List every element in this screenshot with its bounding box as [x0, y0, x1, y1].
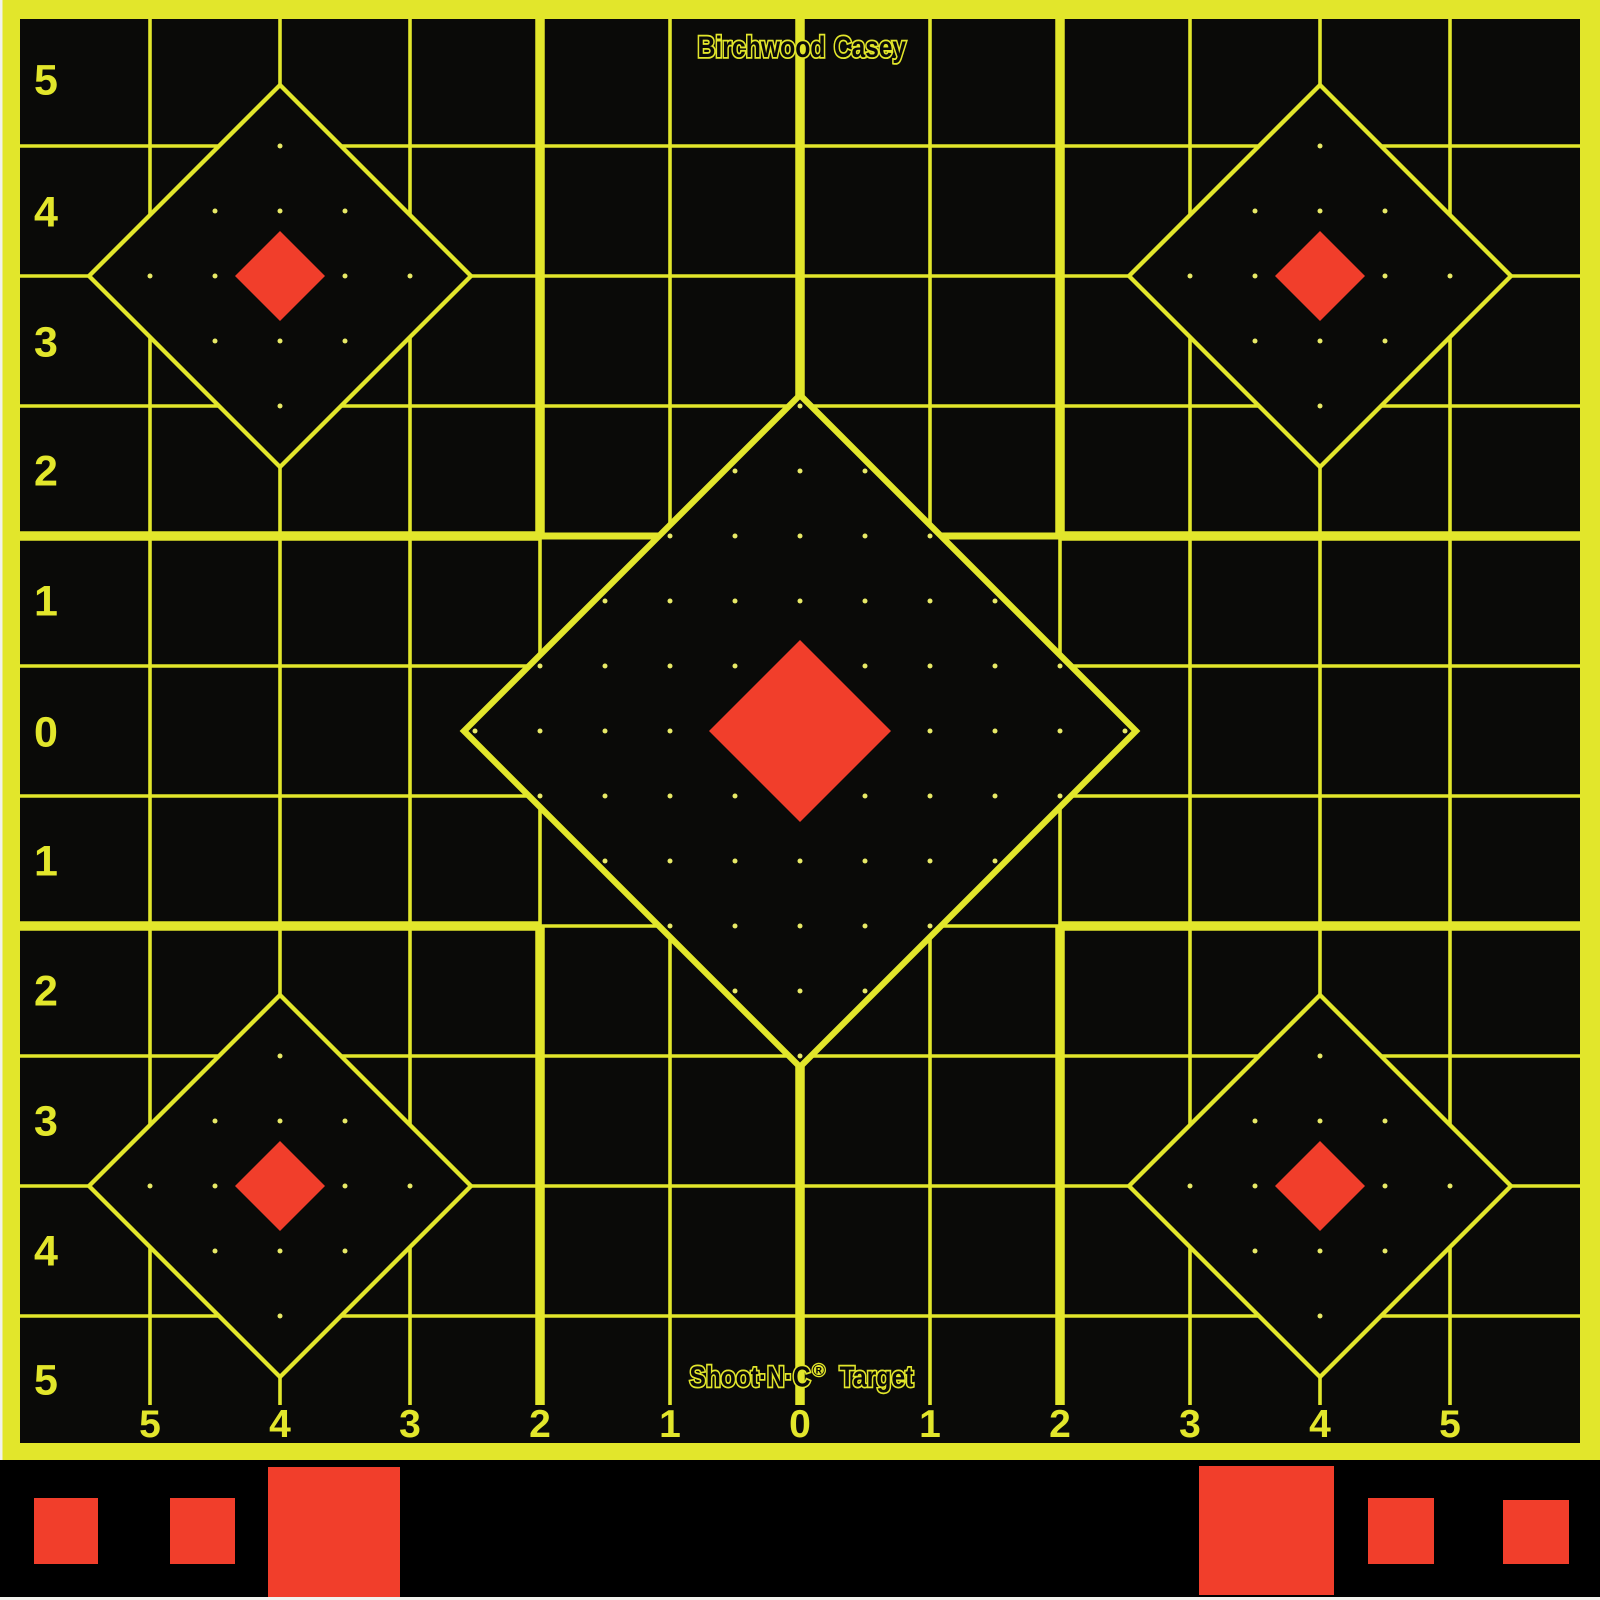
svg-text:Casey: Casey — [834, 31, 906, 64]
svg-text:1: 1 — [659, 1403, 681, 1446]
svg-text:Birchwood: Birchwood — [698, 31, 826, 64]
svg-text:0: 0 — [34, 708, 58, 756]
svg-text:3: 3 — [34, 318, 58, 366]
svg-text:5: 5 — [34, 56, 58, 104]
svg-text:5: 5 — [34, 1356, 58, 1404]
svg-text:Target: Target — [840, 1362, 914, 1394]
svg-text:5: 5 — [1439, 1403, 1461, 1446]
svg-text:5: 5 — [139, 1403, 161, 1446]
svg-text:®: ® — [813, 1361, 826, 1380]
svg-text:2: 2 — [529, 1403, 551, 1446]
svg-text:1: 1 — [34, 837, 58, 885]
svg-text:Shoot·N·C: Shoot·N·C — [690, 1362, 811, 1394]
svg-text:2: 2 — [34, 447, 58, 495]
svg-text:1: 1 — [919, 1403, 941, 1446]
svg-text:4: 4 — [34, 1227, 58, 1275]
svg-text:4: 4 — [269, 1403, 291, 1446]
svg-text:3: 3 — [1179, 1403, 1201, 1446]
svg-text:2: 2 — [34, 967, 58, 1015]
svg-text:2: 2 — [1049, 1403, 1071, 1446]
svg-text:1: 1 — [34, 577, 58, 625]
svg-text:4: 4 — [34, 188, 58, 236]
svg-text:0: 0 — [789, 1403, 811, 1446]
svg-text:3: 3 — [399, 1403, 421, 1446]
svg-text:4: 4 — [1309, 1403, 1331, 1446]
svg-text:3: 3 — [34, 1097, 58, 1145]
